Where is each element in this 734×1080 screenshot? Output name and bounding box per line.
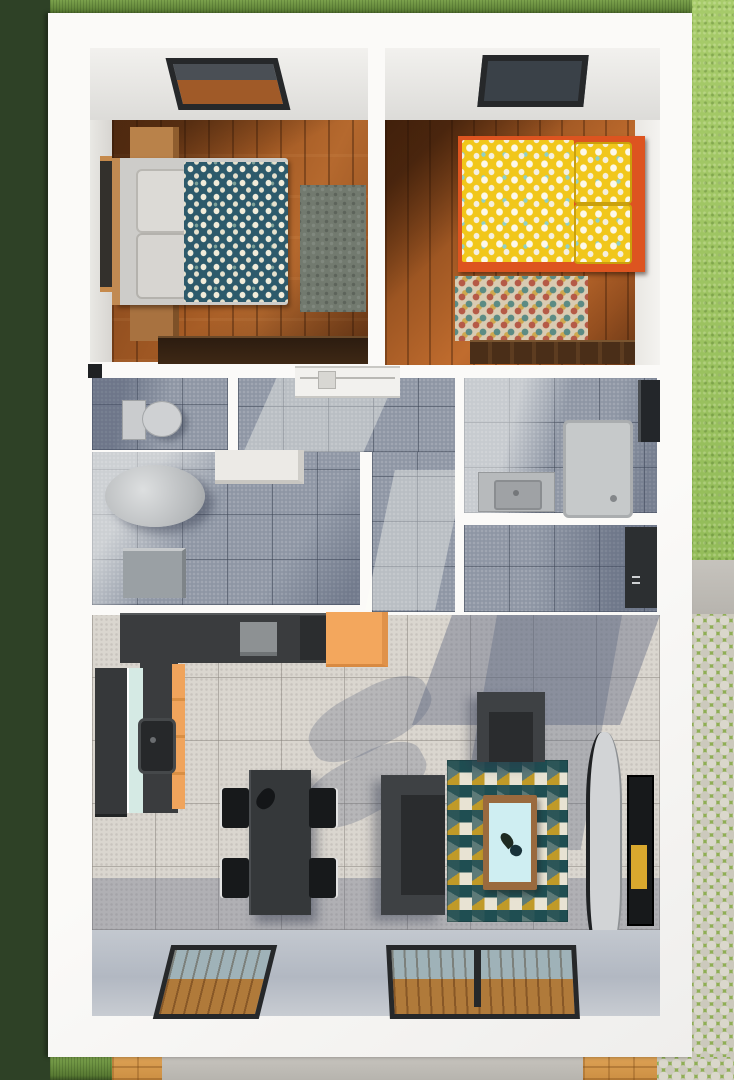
tall-unit-dark [95,668,127,817]
sofa-seat [401,795,445,895]
boiler-cylinder [105,465,205,527]
bed1-duvet [184,162,288,302]
floor-window-double [386,945,580,1019]
floor-plan [0,0,734,1080]
kitchen-hood-block [300,616,326,660]
armchair-seat [489,712,533,762]
shower-drain-icon [610,495,617,502]
bedroom1-window-icon [100,156,112,292]
lawn-right [692,0,734,560]
shrubs-left [0,0,50,1080]
bedroom2-dresser [470,340,635,364]
tv-console [586,732,622,958]
orange-cabinet-end [326,612,388,667]
concrete-patio [162,1057,583,1080]
bed2-pillow-1 [574,142,632,204]
cobblestone-path [692,614,734,1080]
bedroom1-skylight-icon [166,58,291,110]
dining-table [249,770,311,915]
bathroom2-window-icon [638,380,660,442]
kitchen-sink [138,718,176,774]
bed1-pillow-1 [136,169,188,233]
wardrobe-top [295,366,400,398]
washing-machine [123,548,186,598]
floor-shadow-bottom [92,878,660,930]
kitchen-counter-top-run [120,613,326,663]
grass-bottom-left [50,1057,112,1080]
wardrobe-rail [300,377,395,379]
dining-chair-3 [309,788,336,828]
cooktop [240,622,277,656]
floor-window-single [153,945,277,1019]
wardrobe-box [318,371,336,389]
deck-right [583,1057,657,1080]
wc-window-icon [88,364,102,378]
faucet-icon [150,737,156,743]
dining-chair-1 [222,788,249,828]
front-door-handle-icon [632,582,640,584]
shower-tray [563,420,633,518]
concrete-right [692,560,734,614]
front-door [625,527,657,608]
bed1-pillow-2 [136,233,188,299]
bedroom1-rug [300,185,366,312]
dining-chair-2 [222,858,249,898]
bed2-pillow-2 [574,204,632,264]
vanity-drain-icon [513,490,519,496]
toilet-bowl [142,401,182,437]
bedroom2-skylight-icon [477,55,588,107]
bathroom1-counter [215,450,304,484]
dining-chair-4 [309,858,336,898]
cobble-bottom-right [657,1057,734,1080]
bed2-duvet [462,140,574,262]
bedroom1-dresser [158,336,368,364]
bed1-headboard [112,158,120,305]
deck-left [112,1057,162,1080]
floor-window-mullion [474,947,481,1007]
tv-screen-art [631,845,647,889]
bedroom2-rug [455,276,588,341]
